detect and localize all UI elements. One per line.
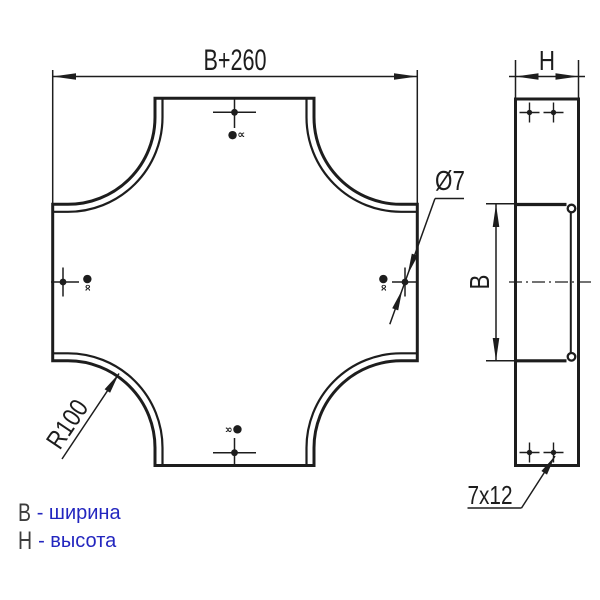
stamp-mark-left: ●∝ <box>82 274 95 291</box>
stamp-mark-bottom: ●∝ <box>225 424 242 437</box>
cross-piece-outline <box>53 98 418 465</box>
hole-left <box>51 268 79 297</box>
arrowhead-b-bottom <box>493 338 500 361</box>
dim-label-b: B <box>466 275 494 290</box>
dim-label-dia7: Ø7 <box>435 167 465 195</box>
legend-row-height: H - высота <box>18 527 116 556</box>
side-view-body <box>516 99 579 466</box>
arrowhead-h-left <box>516 73 539 80</box>
stamp-mark-top: ●∝ <box>228 128 245 141</box>
legend-symbol-h: H <box>18 527 32 556</box>
legend-meaning-height: - высота <box>38 530 116 553</box>
hole-top <box>213 98 256 129</box>
stamp-mark-right: ●∝ <box>378 274 391 291</box>
technical-drawing-canvas: ●∝ ●∝ ●∝ ●∝ <box>0 0 600 600</box>
cross-flange-edges <box>53 100 418 465</box>
arrowhead-lower <box>392 290 402 311</box>
rolled-edge-bottom <box>568 353 576 361</box>
cross-holes <box>51 98 417 468</box>
legend-row-width: B - ширина <box>18 499 121 528</box>
side-view <box>509 99 592 466</box>
arrowhead-r100 <box>105 374 119 393</box>
dim-label-7x12: 7x12 <box>467 482 512 508</box>
arrowhead-h-right <box>556 73 579 80</box>
rolled-edge-top <box>568 205 576 213</box>
cross-outer-contour <box>53 98 418 465</box>
leader-dia7 <box>390 199 464 325</box>
dim-label-h: H <box>539 47 555 75</box>
dim-label-b260: B+260 <box>203 46 266 76</box>
legend-meaning-width: - ширина <box>37 502 121 525</box>
legend-symbol-b: B <box>18 499 31 528</box>
arrowhead-b-top <box>493 204 500 227</box>
arrowhead-left <box>53 73 76 80</box>
slot-hole-top-left <box>520 103 540 123</box>
slot-hole-bottom-left <box>520 443 540 463</box>
arrowhead-right <box>394 73 417 80</box>
hole-bottom <box>213 438 256 467</box>
slot-hole-top-right <box>544 103 564 123</box>
hole-stamp-marks: ●∝ ●∝ ●∝ ●∝ <box>82 128 391 437</box>
